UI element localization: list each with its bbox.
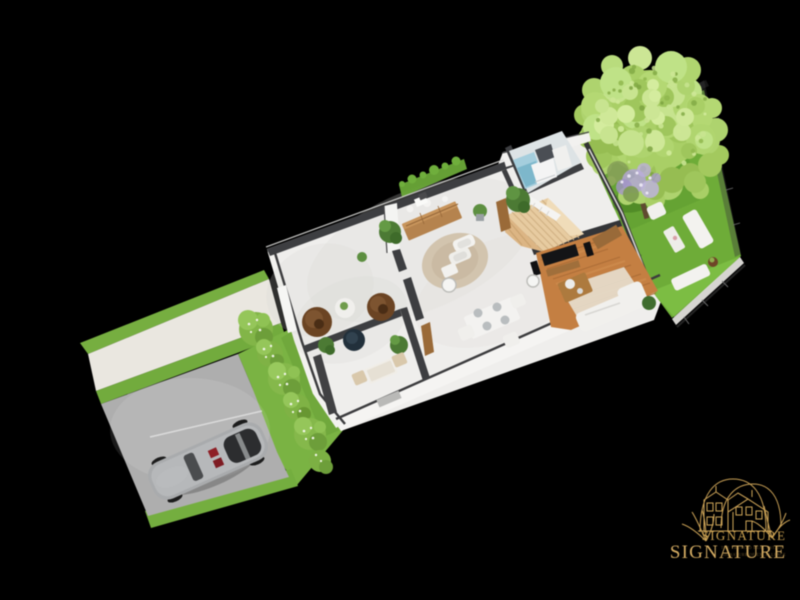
svg-text:SIGNATURE: SIGNATURE bbox=[702, 528, 787, 543]
svg-text:SIGNATURE OF EXCELLENCE: SIGNATURE OF EXCELLENCE bbox=[722, 552, 786, 557]
svg-text:THE TRUSTED REAL ESTATE: THE TRUSTED REAL ESTATE bbox=[721, 545, 783, 550]
